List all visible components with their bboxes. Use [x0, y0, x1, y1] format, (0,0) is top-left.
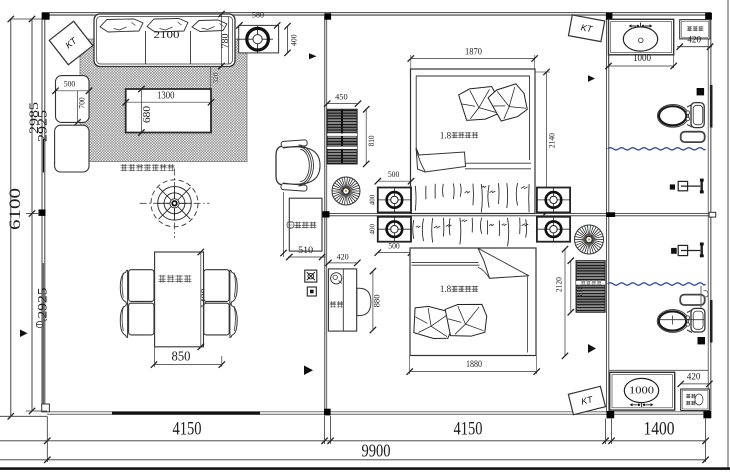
svg-text:850: 850 — [172, 350, 191, 365]
svg-text:2100: 2100 — [154, 29, 181, 41]
svg-text:880: 880 — [372, 294, 381, 307]
svg-text:9900: 9900 — [362, 441, 391, 461]
svg-text:6100: 6100 — [7, 188, 24, 230]
svg-text:500: 500 — [388, 169, 400, 179]
svg-text:700: 700 — [76, 97, 86, 109]
svg-text:1000: 1000 — [633, 53, 651, 64]
svg-text:1880: 1880 — [466, 359, 482, 369]
svg-text:500: 500 — [64, 79, 76, 89]
svg-text:580: 580 — [252, 9, 264, 19]
svg-text:4150: 4150 — [454, 418, 483, 439]
svg-text:2140: 2140 — [547, 133, 557, 148]
svg-text:2925: 2925 — [34, 288, 49, 319]
svg-text:400: 400 — [289, 34, 299, 46]
svg-text:510: 510 — [298, 246, 313, 256]
svg-text:1000: 1000 — [629, 384, 655, 396]
svg-text:450: 450 — [335, 92, 348, 102]
svg-text:4150: 4150 — [173, 418, 202, 439]
svg-text:320: 320 — [211, 72, 220, 83]
svg-text:680: 680 — [142, 106, 153, 123]
svg-text:400: 400 — [368, 224, 377, 235]
svg-text:2120: 2120 — [554, 277, 564, 292]
svg-text:420: 420 — [337, 252, 349, 262]
svg-text:1300: 1300 — [157, 91, 175, 102]
svg-text:780: 780 — [221, 33, 231, 48]
svg-text:1400: 1400 — [644, 418, 675, 439]
svg-text:420: 420 — [687, 35, 701, 45]
svg-text:400: 400 — [368, 195, 377, 206]
svg-text:810: 810 — [575, 286, 584, 297]
svg-text:420: 420 — [687, 373, 701, 383]
svg-text:2925: 2925 — [34, 110, 49, 142]
svg-text:1.8: 1.8 — [440, 284, 452, 294]
svg-text:1870: 1870 — [465, 46, 482, 56]
svg-text:500: 500 — [388, 241, 400, 251]
svg-text:810: 810 — [366, 135, 376, 146]
svg-text:1.8: 1.8 — [440, 130, 452, 140]
